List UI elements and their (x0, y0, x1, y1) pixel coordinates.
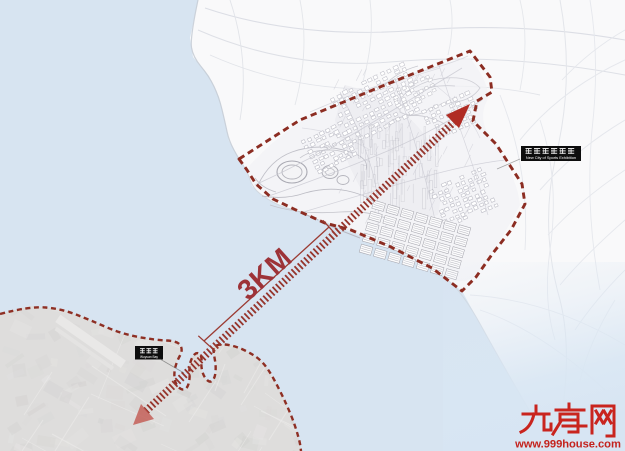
svg-text:Wuyuan Bay: Wuyuan Bay (140, 355, 158, 359)
svg-text:www.999house.com: www.999house.com (514, 439, 621, 451)
svg-text:New City of Sports Exhibition: New City of Sports Exhibition (526, 155, 576, 160)
